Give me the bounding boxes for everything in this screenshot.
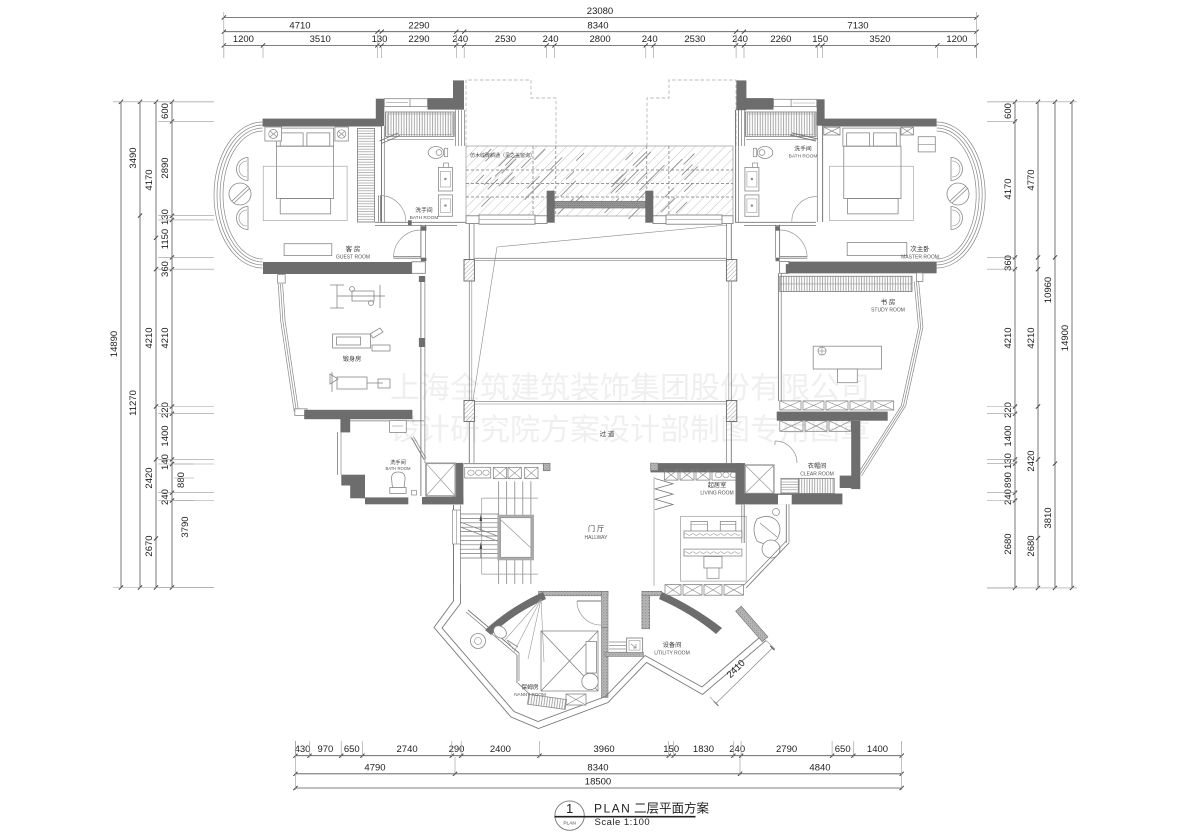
svg-text:3510: 3510 bbox=[310, 34, 331, 45]
svg-text:140: 140 bbox=[160, 454, 171, 470]
svg-text:240: 240 bbox=[452, 34, 468, 45]
svg-text:2800: 2800 bbox=[590, 34, 611, 45]
svg-text:洗手间: 洗手间 bbox=[794, 145, 812, 153]
svg-text:14890: 14890 bbox=[109, 331, 120, 357]
svg-text:4210: 4210 bbox=[1003, 327, 1014, 348]
svg-text:3960: 3960 bbox=[594, 744, 615, 755]
svg-text:1200: 1200 bbox=[946, 34, 967, 45]
svg-text:上海全筑建筑装饰集团股份有限公司: 上海全筑建筑装饰集团股份有限公司 bbox=[390, 372, 870, 405]
svg-text:仿木纹砖斜通（见之盖窗询）: 仿木纹砖斜通（见之盖窗询） bbox=[470, 152, 535, 159]
svg-text:130: 130 bbox=[372, 34, 388, 45]
svg-text:4790: 4790 bbox=[364, 762, 385, 773]
svg-text:650: 650 bbox=[835, 744, 851, 755]
svg-text:14900: 14900 bbox=[1060, 325, 1071, 351]
svg-text:890: 890 bbox=[1003, 472, 1014, 488]
svg-text:1150: 1150 bbox=[160, 229, 171, 249]
svg-text:240: 240 bbox=[1003, 489, 1014, 505]
svg-text:4170: 4170 bbox=[1003, 178, 1014, 199]
svg-text:4210: 4210 bbox=[160, 327, 171, 348]
svg-text:2530: 2530 bbox=[495, 34, 516, 45]
svg-text:220: 220 bbox=[1003, 402, 1014, 418]
svg-text:2680: 2680 bbox=[1003, 533, 1014, 554]
svg-text:240: 240 bbox=[732, 34, 748, 45]
svg-text:2420: 2420 bbox=[1026, 450, 1037, 471]
svg-text:保姆房: 保姆房 bbox=[521, 683, 539, 691]
svg-text:4770: 4770 bbox=[1026, 169, 1037, 190]
svg-text:衣帽间: 衣帽间 bbox=[808, 462, 827, 470]
svg-text:290: 290 bbox=[449, 744, 465, 755]
svg-text:BATH ROOM: BATH ROOM bbox=[789, 154, 818, 160]
svg-text:970: 970 bbox=[317, 744, 333, 755]
svg-text:Scale 1:100: Scale 1:100 bbox=[595, 817, 651, 828]
svg-text:起居室: 起居室 bbox=[708, 481, 727, 489]
svg-text:MASTER ROOM: MASTER ROOM bbox=[901, 255, 939, 261]
svg-text:2420: 2420 bbox=[144, 467, 155, 488]
svg-text:4170: 4170 bbox=[144, 169, 155, 190]
svg-text:设备间: 设备间 bbox=[663, 641, 682, 649]
svg-text:8340: 8340 bbox=[587, 762, 608, 773]
svg-text:3490: 3490 bbox=[128, 147, 139, 168]
svg-text:2260: 2260 bbox=[770, 34, 791, 45]
svg-text:BATH ROOM: BATH ROOM bbox=[385, 466, 411, 471]
svg-text:2680: 2680 bbox=[1026, 535, 1037, 556]
svg-text:430: 430 bbox=[295, 744, 311, 755]
svg-text:STUDY ROOM: STUDY ROOM bbox=[871, 308, 905, 314]
svg-text:23080: 23080 bbox=[587, 6, 613, 17]
svg-text:8340: 8340 bbox=[587, 20, 608, 31]
svg-text:书 房: 书 房 bbox=[881, 297, 896, 306]
svg-text:1200: 1200 bbox=[233, 34, 254, 45]
svg-text:1: 1 bbox=[566, 801, 573, 816]
svg-text:GUEST ROOM: GUEST ROOM bbox=[336, 255, 370, 261]
svg-text:锻身房: 锻身房 bbox=[343, 355, 362, 363]
svg-text:客 房: 客 房 bbox=[346, 244, 361, 253]
svg-text:130: 130 bbox=[1003, 453, 1014, 469]
svg-text:二层平面方案: 二层平面方案 bbox=[634, 801, 710, 816]
svg-text:洗手间: 洗手间 bbox=[415, 206, 433, 214]
svg-text:CLEAR ROOM: CLEAR ROOM bbox=[800, 472, 834, 478]
svg-text:220: 220 bbox=[160, 402, 171, 418]
svg-text:4710: 4710 bbox=[289, 20, 310, 31]
svg-text:2890: 2890 bbox=[160, 157, 171, 178]
svg-text:240: 240 bbox=[642, 34, 658, 45]
svg-text:4210: 4210 bbox=[144, 327, 155, 348]
svg-text:4840: 4840 bbox=[809, 762, 830, 773]
svg-text:650: 650 bbox=[344, 744, 360, 755]
svg-text:洗手间: 洗手间 bbox=[390, 458, 406, 466]
svg-text:240: 240 bbox=[543, 34, 559, 45]
svg-text:10960: 10960 bbox=[1043, 277, 1054, 303]
svg-text:7130: 7130 bbox=[847, 20, 868, 31]
svg-text:HALLWAY: HALLWAY bbox=[585, 535, 609, 541]
svg-text:600: 600 bbox=[1003, 103, 1014, 119]
svg-text:880: 880 bbox=[176, 472, 187, 488]
svg-text:2290: 2290 bbox=[408, 34, 429, 45]
svg-text:4210: 4210 bbox=[1026, 327, 1037, 348]
svg-text:UTILITY ROOM: UTILITY ROOM bbox=[654, 651, 689, 657]
svg-text:2290: 2290 bbox=[408, 20, 429, 31]
svg-text:2670: 2670 bbox=[144, 535, 155, 556]
svg-text:过 道: 过 道 bbox=[600, 429, 615, 438]
svg-text:BATH ROOM: BATH ROOM bbox=[410, 215, 439, 221]
svg-text:2400: 2400 bbox=[490, 744, 511, 755]
svg-text:240: 240 bbox=[160, 489, 171, 505]
svg-text:150: 150 bbox=[812, 34, 828, 45]
svg-text:11270: 11270 bbox=[128, 390, 139, 416]
svg-text:NANNY ROOM: NANNY ROOM bbox=[514, 692, 546, 697]
svg-text:1400: 1400 bbox=[160, 425, 171, 446]
svg-text:1400: 1400 bbox=[1003, 425, 1014, 446]
svg-text:130: 130 bbox=[160, 209, 171, 225]
svg-text:2530: 2530 bbox=[684, 34, 705, 45]
svg-text:次主卧: 次主卧 bbox=[910, 244, 930, 253]
svg-text:LIVING ROOM: LIVING ROOM bbox=[700, 491, 733, 497]
svg-text:PLAN: PLAN bbox=[594, 802, 631, 816]
svg-text:18500: 18500 bbox=[585, 777, 611, 788]
svg-text:1830: 1830 bbox=[693, 744, 714, 755]
svg-text:3810: 3810 bbox=[1043, 507, 1054, 528]
svg-text:2740: 2740 bbox=[397, 744, 418, 755]
svg-text:PLAN: PLAN bbox=[563, 821, 576, 827]
svg-text:门 厅: 门 厅 bbox=[588, 524, 604, 533]
svg-text:3790: 3790 bbox=[180, 516, 191, 537]
svg-text:240: 240 bbox=[729, 744, 745, 755]
svg-text:150: 150 bbox=[663, 744, 679, 755]
svg-text:3520: 3520 bbox=[869, 34, 890, 45]
svg-text:600: 600 bbox=[160, 103, 171, 119]
svg-text:2790: 2790 bbox=[776, 744, 797, 755]
svg-text:1400: 1400 bbox=[867, 744, 888, 755]
